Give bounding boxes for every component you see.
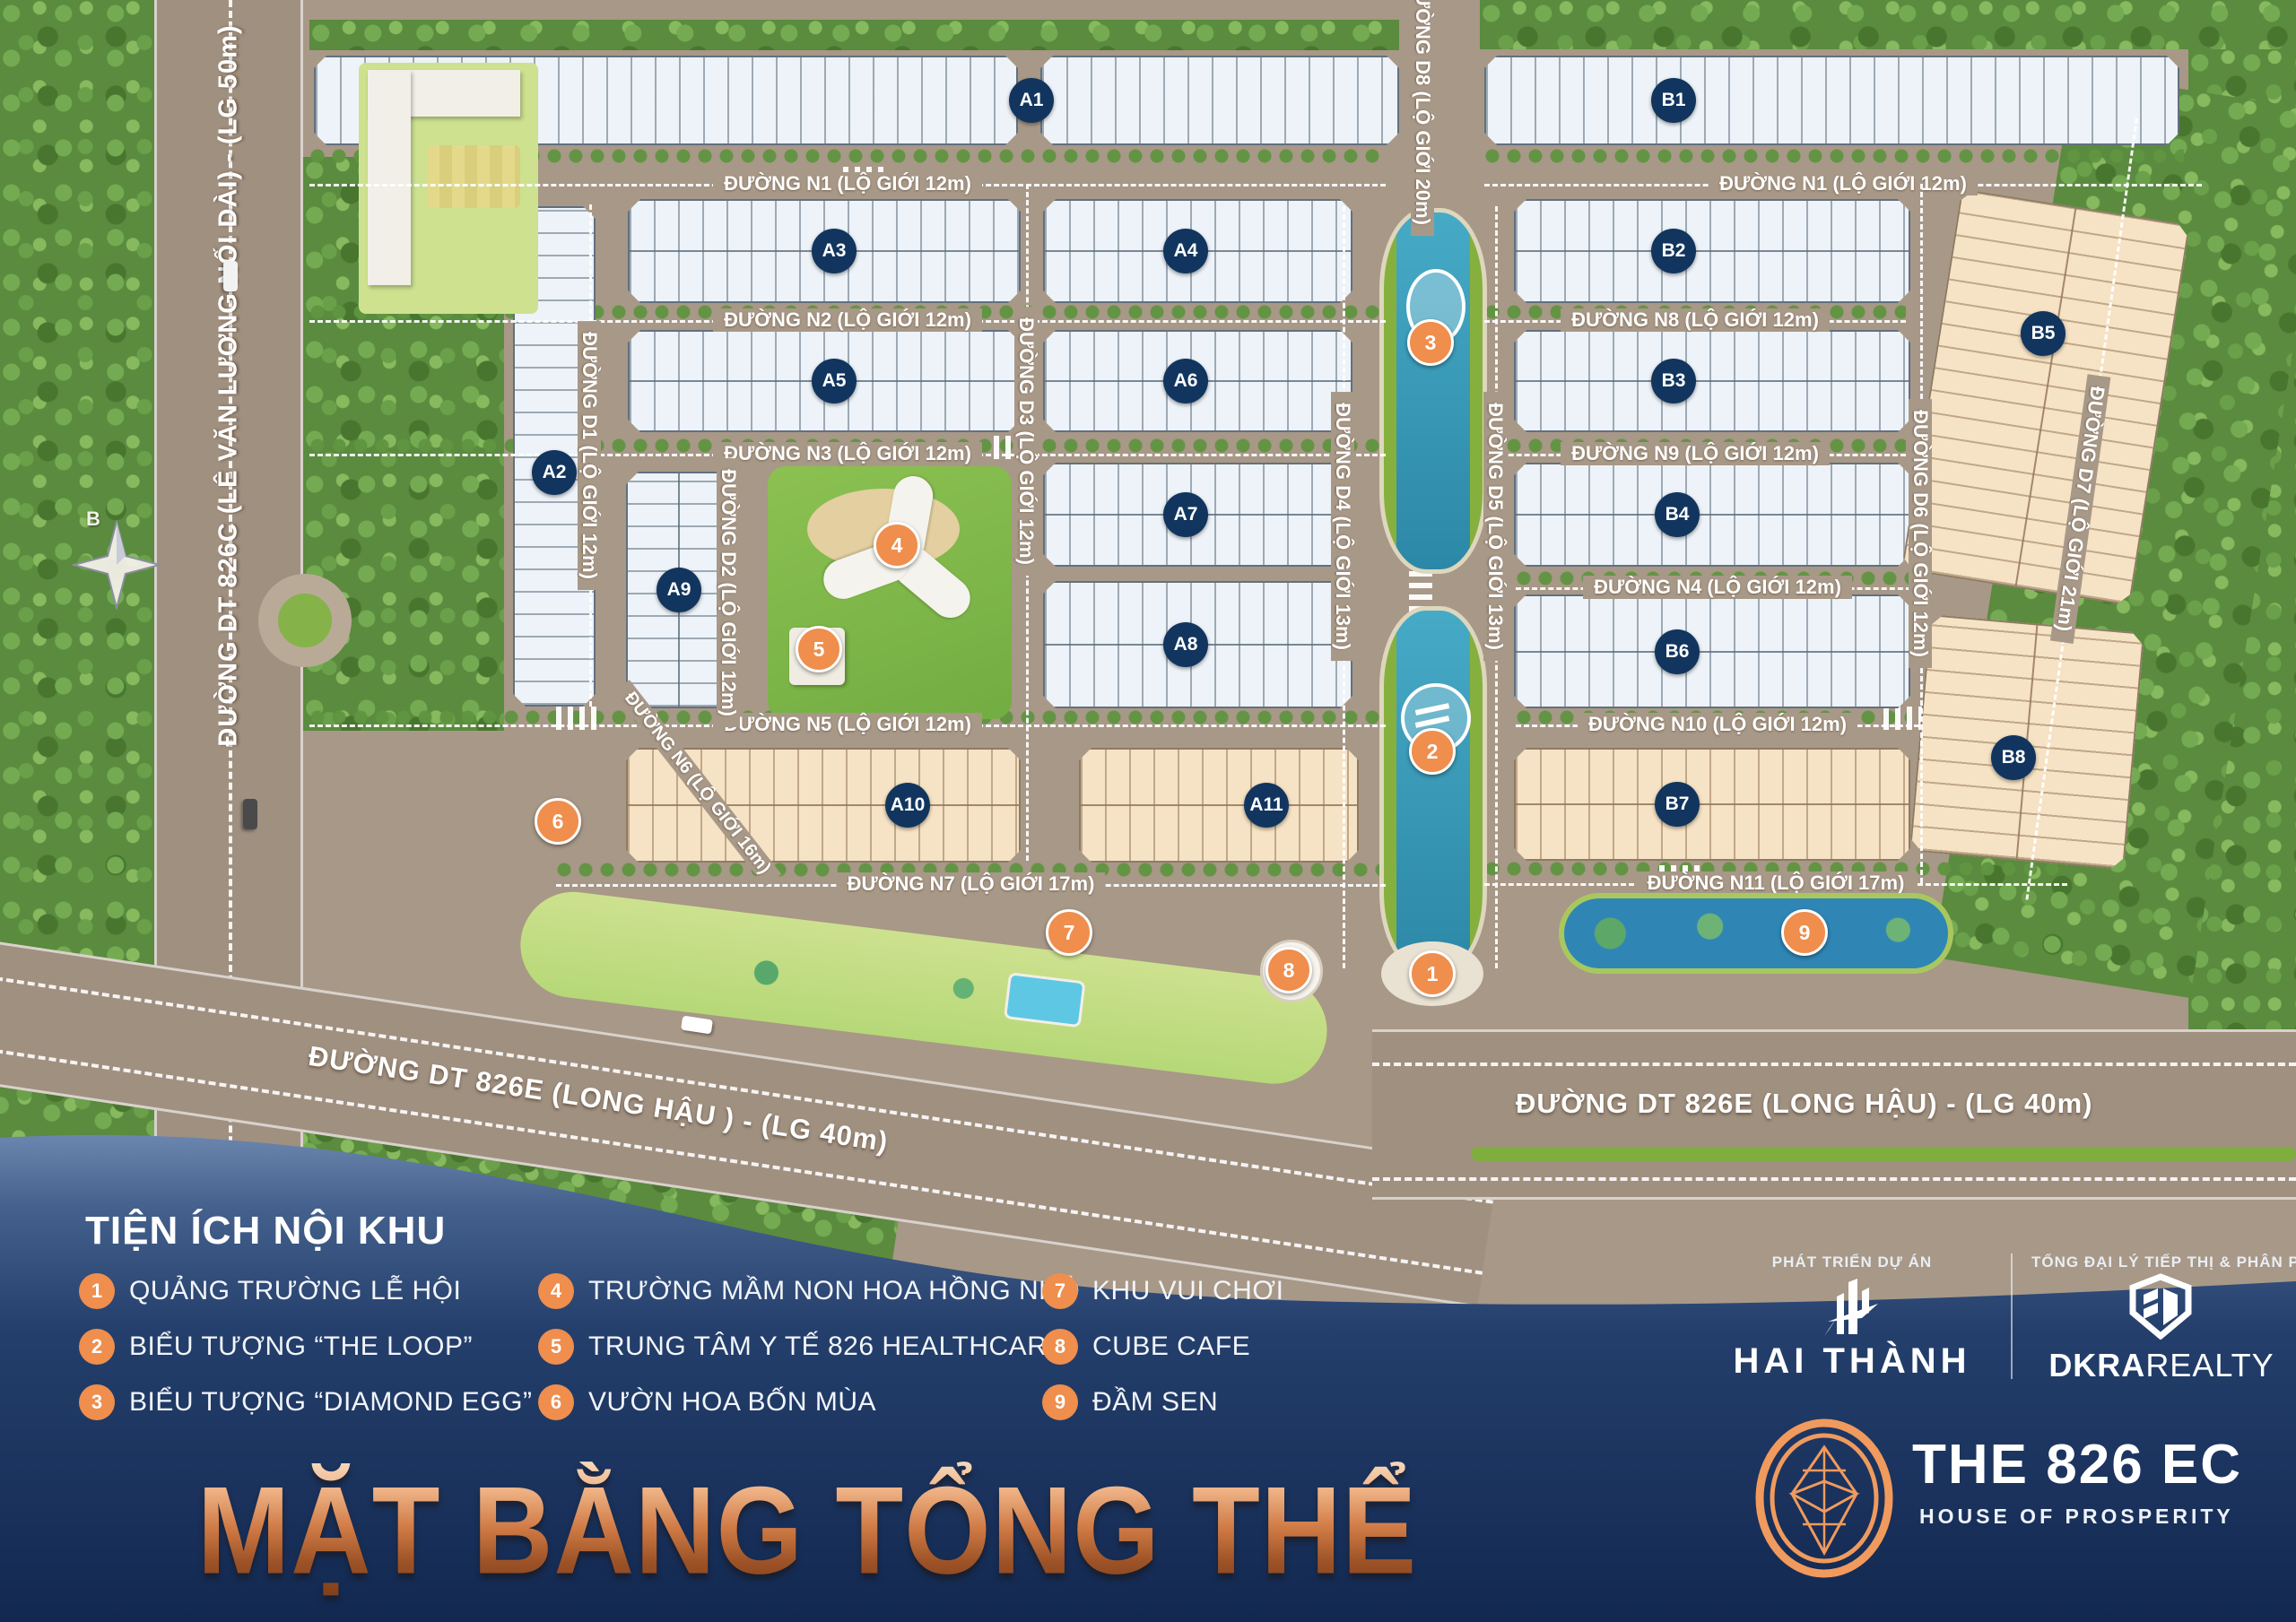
legend-item-2: 2 BIỂU TƯỢNG “THE LOOP” <box>79 1329 473 1365</box>
badge-a2: A2 <box>532 450 577 495</box>
developer-name: HAI THÀNH <box>1709 1341 1996 1382</box>
legend-num-5: 5 <box>538 1329 574 1365</box>
project-name: THE 826 EC <box>1912 1433 2242 1496</box>
legend-num-1: 1 <box>79 1273 115 1309</box>
block-b2 <box>1514 199 1910 303</box>
block-b7 <box>1514 748 1910 861</box>
street-n7: ĐƯỜNG N7 (LỘ GIỚI 17m) <box>556 872 1386 896</box>
street-n8: ĐƯỜNG N8 (LỘ GIỚI 12m) <box>1484 308 1906 332</box>
street-n10: ĐƯỜNG N10 (LỘ GIỚI 12m) <box>1516 713 1919 736</box>
badge-a5: A5 <box>812 359 857 403</box>
badge-b3: B3 <box>1651 359 1696 403</box>
lotus-pond <box>1559 893 1953 974</box>
project-tagline: HOUSE OF PROSPERITY <box>1919 1505 2234 1529</box>
legend-num-7: 7 <box>1042 1273 1078 1309</box>
street-d2: ĐƯỜNG D2 (LỘ GIỚI 12m) <box>717 462 740 724</box>
badge-b8: B8 <box>1991 735 2036 780</box>
street-n3: ĐƯỜNG N3 (LỘ GIỚI 12m) <box>309 442 1386 465</box>
street-n9: ĐƯỜNG N9 (LỘ GIỚI 12m) <box>1484 442 1906 465</box>
badge-b6: B6 <box>1655 629 1700 674</box>
distributor-name: DKRAREALTY <box>2031 1347 2292 1384</box>
badge-b7: B7 <box>1655 782 1700 827</box>
masterplan-poster: ĐƯỜNG DT 826C (LÊ VĂN LƯƠNG NỐI DÀI) - (… <box>0 0 2296 1622</box>
forest-top-strip <box>309 20 1399 50</box>
legend-item-9: 9 ĐẦM SEN <box>1042 1384 1218 1420</box>
legend-num-2: 2 <box>79 1329 115 1365</box>
marker-9-lotus-pond: 9 <box>1781 909 1828 956</box>
forest-top-right <box>1480 0 2296 49</box>
legend-item-5: 5 TRUNG TÂM Y TẾ 826 HEALTHCARE <box>538 1329 1065 1365</box>
badge-a4: A4 <box>1163 229 1208 273</box>
street-n1-left: ĐƯỜNG N1 (LỘ GIỚI 12m) <box>309 172 1386 195</box>
street-n2: ĐƯỜNG N2 (LỘ GIỚI 12m) <box>309 308 1386 332</box>
marker-4-kindergarten: 4 <box>874 522 920 568</box>
badge-a9: A9 <box>657 568 701 612</box>
badge-b4: B4 <box>1655 492 1700 537</box>
car <box>243 799 257 829</box>
dkra-logo-icon <box>2127 1273 2194 1340</box>
legend-item-3: 3 BIỂU TƯỢNG “DIAMOND EGG” <box>79 1384 532 1420</box>
street-d5: ĐƯỜNG D5 (LỘ GIỚI 13m) <box>1483 206 1507 968</box>
block-a1-east <box>1040 56 1399 145</box>
street-n4: ĐƯỜNG N4 (LỘ GIỚI 12m) <box>1516 576 1919 599</box>
street-d6: ĐƯỜNG D6 (LỘ GIỚI 12m) <box>1909 184 1932 883</box>
badge-a1: A1 <box>1009 78 1054 123</box>
block-b6 <box>1514 594 1910 708</box>
marker-2-the-loop: 2 <box>1409 728 1456 775</box>
poster-title: MẶT BẰNG TỔNG THỂ <box>72 1460 1543 1602</box>
hai-thanh-logo-icon <box>1819 1277 1887 1338</box>
block-b4 <box>1514 463 1910 567</box>
legend-item-7: 7 KHU VUI CHƠI <box>1042 1273 1283 1309</box>
car <box>681 1016 713 1035</box>
block-b1 <box>1484 56 2179 145</box>
street-d4: ĐƯỜNG D4 (LỘ GIỚI 13m) <box>1331 206 1354 968</box>
legend-num-6: 6 <box>538 1384 574 1420</box>
street-n11: ĐƯỜNG N11 (LỘ GIỚI 17m) <box>1484 872 2067 895</box>
legend-title: TIỆN ÍCH NỘI KHU <box>85 1209 446 1253</box>
street-n1-right: ĐƯỜNG N1 (LỘ GIỚI 12m) <box>1484 172 2202 195</box>
marker-3-diamond-egg: 3 <box>1407 319 1454 366</box>
swimming-pool <box>1004 972 1086 1028</box>
marker-7-playground: 7 <box>1046 909 1092 956</box>
marker-6-garden: 6 <box>535 798 581 845</box>
legend-item-1: 1 QUẢNG TRƯỜNG LỄ HỘI <box>79 1273 461 1309</box>
marker-8-cube-cafe: 8 <box>1265 947 1312 993</box>
block-a11 <box>1079 748 1359 863</box>
canal-south <box>1379 606 1487 974</box>
compass-icon <box>72 520 161 610</box>
badge-a7: A7 <box>1163 492 1208 537</box>
legend-item-6: 6 VƯỜN HOA BỐN MÙA <box>538 1384 876 1420</box>
compass-north-label: B <box>86 507 100 531</box>
badge-a3: A3 <box>812 229 857 273</box>
street-d8: ĐƯỜNG D8 (LỘ GIỚI 20m) <box>1411 0 1434 202</box>
tree-row <box>1484 149 2184 163</box>
developer-heading: PHÁT TRIỂN DỰ ÁN <box>1735 1253 1969 1271</box>
marker-5-healthcare: 5 <box>796 626 842 672</box>
badge-a8: A8 <box>1163 622 1208 667</box>
badge-a11: A11 <box>1244 783 1289 828</box>
street-d3: ĐƯỜNG D3 (LỘ GIỚI 12m) <box>1014 184 1038 861</box>
legend-item-4: 4 TRƯỜNG MẦM NON HOA HỒNG NHỎ <box>538 1273 1080 1309</box>
badge-b1: B1 <box>1651 78 1696 123</box>
road-dt826c-label: ĐƯỜNG DT 826C (LÊ VĂN LƯƠNG NỐI DÀI) - (… <box>214 24 244 746</box>
street-n5: ĐƯỜNG N5 (LỘ GIỚI 12m) <box>309 713 1386 736</box>
badge-b2: B2 <box>1651 229 1696 273</box>
distributor-heading: TỔNG ĐẠI LÝ TIẾP THỊ & PHÂN PHỐI <box>2031 1253 2292 1271</box>
legend-item-8: 8 CUBE CAFE <box>1042 1329 1250 1365</box>
marker-1-festival-square: 1 <box>1409 950 1456 997</box>
canal-north <box>1379 208 1487 574</box>
roundabout <box>258 574 352 667</box>
badge-a6: A6 <box>1163 359 1208 403</box>
street-d1: ĐƯỜNG D1 (LỘ GIỚI 12m) <box>578 204 601 707</box>
logo-divider <box>2011 1253 2013 1379</box>
legend-num-4: 4 <box>538 1273 574 1309</box>
block-b3 <box>1514 330 1910 432</box>
legend-num-8: 8 <box>1042 1329 1078 1365</box>
legend-num-9: 9 <box>1042 1384 1078 1420</box>
the-826-ec-logo-icon <box>1749 1418 1900 1578</box>
car <box>223 261 238 291</box>
legend-num-3: 3 <box>79 1384 115 1420</box>
badge-a10: A10 <box>885 783 930 828</box>
badge-b5: B5 <box>2021 311 2066 356</box>
